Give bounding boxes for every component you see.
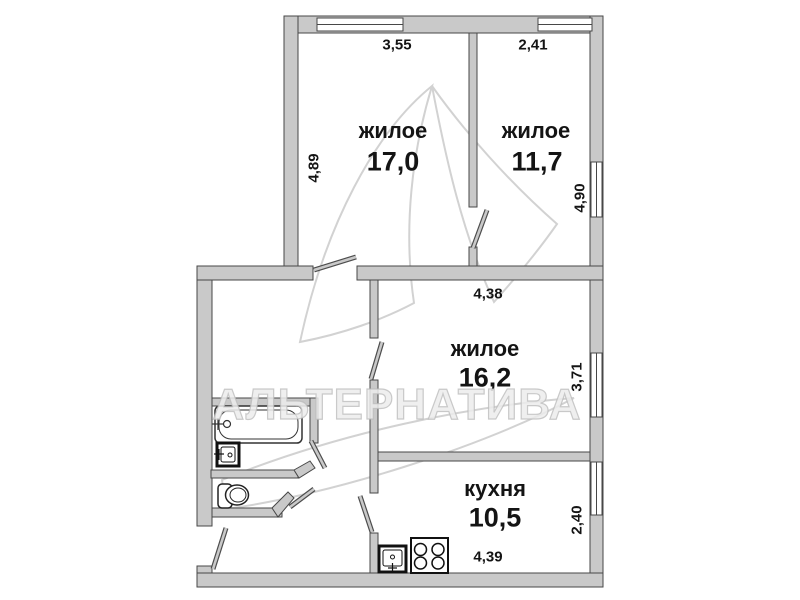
toilet-icon	[218, 484, 249, 508]
room2-width-dimension: 2,41	[518, 37, 547, 54]
room1-width-dimension: 3,55	[382, 37, 411, 54]
room2-name: жилое	[502, 118, 570, 144]
room3-name: жилое	[451, 336, 519, 362]
window-icon	[591, 162, 602, 217]
kitchen-name: кухня	[464, 476, 526, 502]
door-leaf-room3	[371, 342, 382, 379]
room3-width-dimension: 4,38	[473, 286, 502, 303]
room2-height-dimension: 4,90	[572, 183, 589, 212]
wall-segment	[197, 573, 603, 587]
room1-name: жилое	[359, 118, 427, 144]
wall-segment	[310, 398, 318, 443]
room1-area: 17,0	[367, 147, 420, 178]
bathroom-sink-icon	[214, 443, 239, 466]
room1-height-dimension: 4,89	[306, 153, 323, 182]
wall-segment	[370, 280, 378, 338]
window-icon	[317, 18, 403, 31]
wall-segment	[197, 266, 313, 280]
wall-segment	[469, 247, 477, 266]
wall-segment	[370, 380, 378, 493]
wall-segment	[378, 452, 590, 461]
floor-plan: жилое 17,0 3,55 4,89 жилое 11,7 2,41 4,9…	[0, 0, 800, 600]
wall-segment	[197, 266, 212, 526]
wall-segment	[370, 533, 378, 573]
kitchen-height-dimension: 2,40	[569, 505, 586, 534]
stove-icon	[411, 538, 448, 573]
window-icon	[538, 18, 592, 31]
room2-area: 11,7	[511, 147, 562, 178]
wall-segment	[357, 266, 603, 280]
wall-segment-angled	[294, 461, 315, 478]
door-leaf-kitchen	[360, 496, 372, 532]
wall-segment	[211, 470, 298, 478]
wall-segment	[284, 16, 298, 280]
room3-height-dimension: 3,71	[569, 362, 586, 391]
door-leaf-room1	[314, 257, 356, 270]
door-leaf-room2	[473, 210, 487, 248]
kitchen-sink-icon	[379, 546, 406, 572]
wall-segment	[212, 508, 282, 517]
bathtub-icon	[212, 406, 302, 443]
door-leaf-bathroom	[311, 441, 325, 468]
window-icon	[591, 462, 602, 515]
window-icon	[591, 353, 602, 417]
wall-segment	[212, 398, 318, 406]
kitchen-width-dimension: 4,39	[473, 549, 502, 566]
wall-segment	[469, 33, 477, 207]
door-leaf-entrance	[213, 528, 226, 569]
walls	[197, 16, 603, 587]
kitchen-area: 10,5	[469, 503, 522, 534]
room3-area: 16,2	[459, 363, 512, 394]
